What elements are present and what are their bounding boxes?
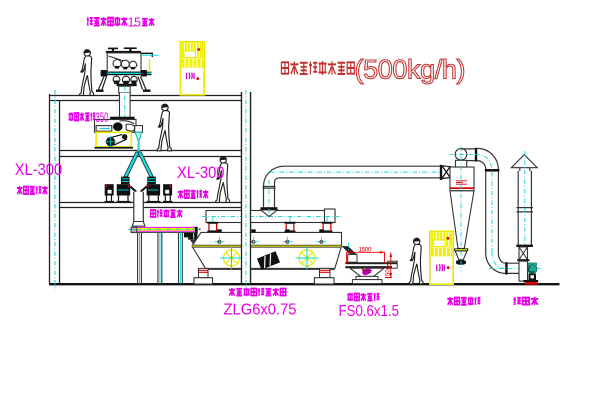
svg-text:XL-300: XL-300 — [177, 164, 225, 182]
svg-text:1500: 1500 — [359, 247, 372, 254]
svg-text:500: 500 — [386, 265, 392, 276]
svg-text:ZLG6x0.75: ZLG6x0.75 — [224, 302, 297, 319]
svg-text:(500kg/h): (500kg/h) — [355, 55, 466, 85]
svg-text:XL-300: XL-300 — [15, 161, 63, 179]
svg-text:350: 350 — [96, 110, 109, 125]
svg-text:1.5: 1.5 — [128, 15, 142, 29]
svg-text:FS0.6x1.5: FS0.6x1.5 — [339, 303, 400, 320]
